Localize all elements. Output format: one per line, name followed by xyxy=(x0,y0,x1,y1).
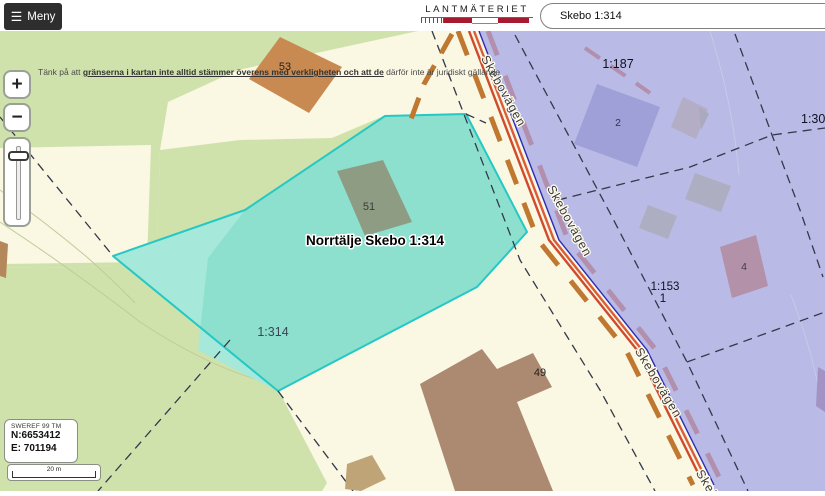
hamburger-icon: ☰ xyxy=(11,10,23,23)
house-number-label: 51 xyxy=(363,201,375,213)
house-number-label: 49 xyxy=(534,367,546,379)
lantmateriet-logo: LANTMÄTERIET xyxy=(421,4,533,23)
menu-button[interactable]: ☰ Meny xyxy=(4,3,62,30)
house-number-label: 2 xyxy=(615,117,621,129)
search-input[interactable] xyxy=(540,3,825,29)
north-coordinate: N:6653412 xyxy=(11,430,77,443)
zoom-in-button[interactable]: + xyxy=(3,70,31,99)
parcel-label: 1:187 xyxy=(602,57,633,71)
house-number-label: 4 xyxy=(741,261,747,273)
disclaimer-suffix: därför inte är juridiskt gällande xyxy=(384,67,500,77)
scale-bracket xyxy=(12,471,96,478)
disclaimer-link[interactable]: gränserna i kartan inte alltid stämmer ö… xyxy=(83,67,384,77)
map-canvas[interactable]: 53 51 1:187 2 1:305 1:153 1 4 49 1:314 N… xyxy=(0,31,825,491)
coordinates-box: SWEREF 99 TM N:6653412 E: 701194 xyxy=(4,419,78,463)
zoom-out-button[interactable]: − xyxy=(3,103,31,132)
logo-text: LANTMÄTERIET xyxy=(421,4,533,15)
top-bar: ☰ Meny LANTMÄTERIET xyxy=(0,0,825,31)
minus-icon: − xyxy=(11,107,22,129)
disclaimer-prefix: Tänk på att xyxy=(38,67,83,77)
east-coordinate: E: 701194 xyxy=(11,443,77,456)
zoom-slider-handle[interactable] xyxy=(8,151,29,161)
parcel-label: 1:305 xyxy=(801,112,825,126)
coordinate-system-label: SWEREF 99 TM xyxy=(11,423,77,430)
parcel-label: 1:314 xyxy=(257,325,288,339)
scale-bar: 20 m xyxy=(7,464,101,481)
zoom-slider[interactable] xyxy=(3,137,31,227)
plus-icon: + xyxy=(11,74,22,96)
menu-button-label: Meny xyxy=(27,11,55,23)
parcel-label: 1 xyxy=(660,293,666,305)
map-disclaimer: Tänk på att gränserna i kartan inte allt… xyxy=(38,67,500,77)
selected-parcel-label: Norrtälje Skebo 1:314 xyxy=(306,233,445,248)
parcel-label: 1:153 xyxy=(651,281,680,293)
logo-ruler-icon xyxy=(421,17,533,23)
